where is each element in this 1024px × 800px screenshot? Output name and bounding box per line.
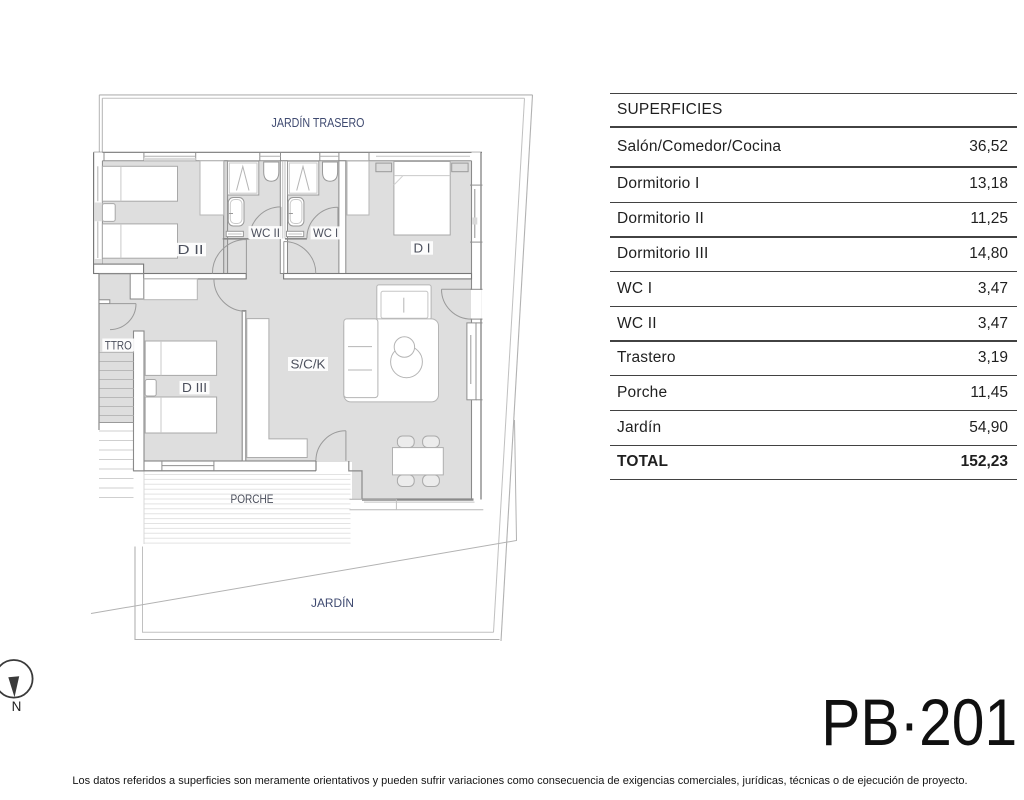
- svg-text:WC I: WC I: [313, 226, 338, 240]
- svg-text:D II: D II: [178, 243, 204, 257]
- svg-text:D III: D III: [182, 381, 207, 395]
- svg-text:PORCHE: PORCHE: [231, 492, 274, 506]
- svg-text:N: N: [12, 699, 22, 714]
- svg-text:JARDÍN TRASERO: JARDÍN TRASERO: [272, 115, 365, 130]
- svg-text:S/C/K: S/C/K: [291, 357, 326, 372]
- svg-text:WC II: WC II: [251, 226, 280, 240]
- svg-text:D I: D I: [414, 241, 431, 255]
- svg-text:JARDÍN: JARDÍN: [311, 595, 354, 610]
- svg-text:TTRO: TTRO: [105, 338, 132, 352]
